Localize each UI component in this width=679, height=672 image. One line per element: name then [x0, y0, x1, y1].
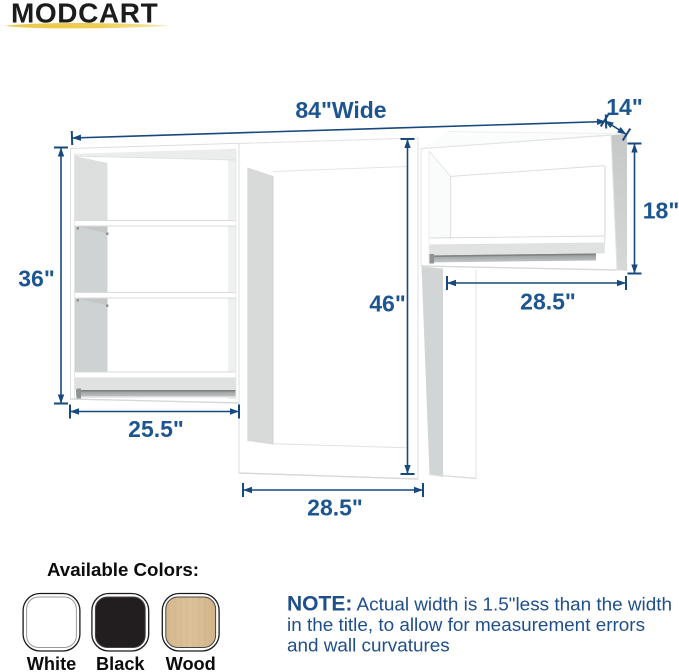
svg-text:28.5": 28.5": [520, 289, 576, 315]
svg-text:36": 36": [18, 266, 55, 292]
svg-text:28.5": 28.5": [307, 495, 363, 521]
svg-text:84"Wide: 84"Wide: [295, 97, 386, 123]
svg-text:Wood: Wood: [166, 654, 216, 672]
svg-text:Available Colors:: Available Colors:: [47, 559, 199, 580]
svg-text:White: White: [27, 654, 77, 672]
svg-text:and wall curvatures: and wall curvatures: [287, 636, 450, 657]
svg-text:18": 18": [643, 198, 679, 224]
svg-text:46": 46": [369, 291, 406, 317]
svg-text:25.5": 25.5": [128, 416, 184, 442]
svg-text:in the title, to allow for mea: in the title, to allow for measurement e…: [287, 615, 645, 636]
svg-text:Black: Black: [96, 654, 145, 672]
svg-text:14": 14": [606, 94, 643, 120]
svg-text:NOTE: Actual width is 1.5"less: NOTE: Actual width is 1.5"less than the …: [287, 593, 672, 616]
